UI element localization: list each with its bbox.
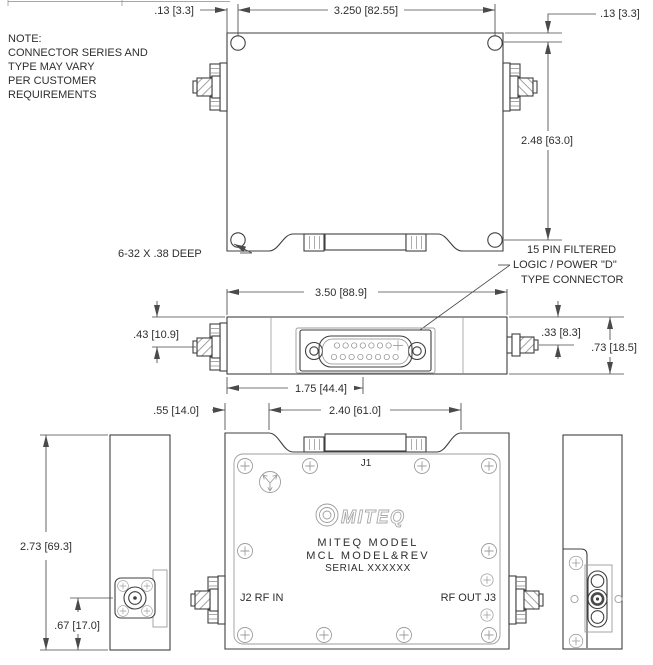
dim-notch-offset: .55 [14.0] <box>153 405 199 417</box>
note-line-5: REQUIREMENTS <box>8 89 97 101</box>
note-line-3: TYPE MAY VARY <box>8 61 95 73</box>
dim-hole-offset-left: .13 [3.3] <box>154 5 194 17</box>
right-side-view <box>563 435 622 649</box>
screw-icon <box>118 606 129 617</box>
dim-hole-span-height: 2.48 [63.0] <box>521 135 573 147</box>
screw-icon <box>415 459 430 474</box>
screw-icon <box>142 606 153 617</box>
dim-dsub-center: 1.75 [44.4] <box>295 383 347 395</box>
dsub-callout: 15 PIN FILTERED LOGIC / POWER "D" TYPE C… <box>402 244 624 343</box>
screw-icon <box>397 628 412 643</box>
screw-icon <box>481 609 493 621</box>
dim-body-thickness: .73 [18.5] <box>591 342 637 354</box>
screw-icon <box>482 628 497 643</box>
j3-sma-connector-icon <box>509 576 543 624</box>
dim-hole-span-width: 3.250 [82.55] <box>334 5 398 17</box>
sma-connector-left-icon <box>193 63 227 111</box>
engineering-drawing: NOTE: CONNECTOR SERIES AND TYPE MAY VARY… <box>0 0 653 665</box>
faceplate-model-line-1: MITEQ MODEL <box>317 537 418 549</box>
dim-sma-left-drop: .43 [10.9] <box>133 329 179 341</box>
j3-rf-out-label: RF OUT J3 <box>441 592 496 604</box>
sma-connector-left-icon <box>193 323 227 371</box>
cropped-dimension-remnants <box>8 0 230 6</box>
screw-icon <box>482 544 497 559</box>
screw-icon <box>303 459 318 474</box>
engineering-drawing-canvas: NOTE: CONNECTOR SERIES AND TYPE MAY VARY… <box>0 0 653 665</box>
dim-rf-center-height: .67 [17.0] <box>54 620 100 632</box>
dsub-callout-line-3: TYPE CONNECTOR <box>521 274 624 286</box>
screw-icon <box>238 544 253 559</box>
orientation-mark-icon <box>260 472 281 493</box>
left-side-view <box>110 435 170 650</box>
j1-edge-connector <box>304 434 426 452</box>
note-line-4: PER CUSTOMER <box>8 75 96 87</box>
screw-icon <box>238 628 253 643</box>
dim-sma-right-drop: .33 [8.3] <box>541 327 581 339</box>
top-view <box>193 33 537 251</box>
j2-sma-connector-icon <box>191 576 225 624</box>
dim-notch-width: 2.40 [61.0] <box>329 405 381 417</box>
screw-icon <box>481 574 493 586</box>
note-line-2: CONNECTOR SERIES AND <box>8 47 148 59</box>
faceplate-model-line-2: MCL MODEL&REV <box>306 550 430 562</box>
j2-rf-in-label: J2 RF IN <box>240 592 283 604</box>
screw-icon <box>482 459 497 474</box>
dsub-edge-profile <box>304 234 426 251</box>
miteq-logo: MITEQ <box>316 504 406 527</box>
sma-connector-right-icon <box>507 334 538 356</box>
screw-icon <box>142 581 153 592</box>
tap-callout: 6-32 X .38 DEEP <box>118 248 202 260</box>
screw-icon <box>118 581 129 592</box>
dim-body-height: 2.73 [69.3] <box>20 541 72 553</box>
side-elevation-view <box>193 317 538 374</box>
dim-hole-offset-right: .13 [3.3] <box>600 8 640 20</box>
top-view-dimensions: .13 [3.3] 3.250 [82.55] .13 [3.3] 2.48 [… <box>118 3 640 260</box>
dsub-connector <box>296 328 435 373</box>
bottom-face-view: MITEQ MITEQ MODEL MCL MODEL&REV SERIAL X… <box>191 433 543 649</box>
screw-icon <box>238 459 253 474</box>
dsub-callout-line-2: LOGIC / POWER "D" <box>513 259 617 271</box>
dim-body-width: 3.50 [88.9] <box>315 287 367 299</box>
faceplate-serial: SERIAL XXXXXX <box>325 563 411 574</box>
brand-logo-text: MITEQ <box>341 507 406 527</box>
sma-connector-right-icon <box>503 63 537 111</box>
note-block: NOTE: CONNECTOR SERIES AND TYPE MAY VARY… <box>8 33 148 101</box>
bottom-view-dimensions: .55 [14.0] 2.40 [61.0] <box>153 403 461 430</box>
screw-icon <box>317 628 332 643</box>
left-side-dimensions: 2.73 [69.3] .67 [17.0] <box>20 435 113 650</box>
note-line-1: NOTE: <box>8 33 42 45</box>
screw-icon <box>569 634 583 648</box>
j1-label: J1 <box>361 458 372 469</box>
screw-icon <box>569 556 583 570</box>
corner-holes <box>231 36 502 247</box>
dsub-callout-line-1: 15 PIN FILTERED <box>527 244 616 256</box>
